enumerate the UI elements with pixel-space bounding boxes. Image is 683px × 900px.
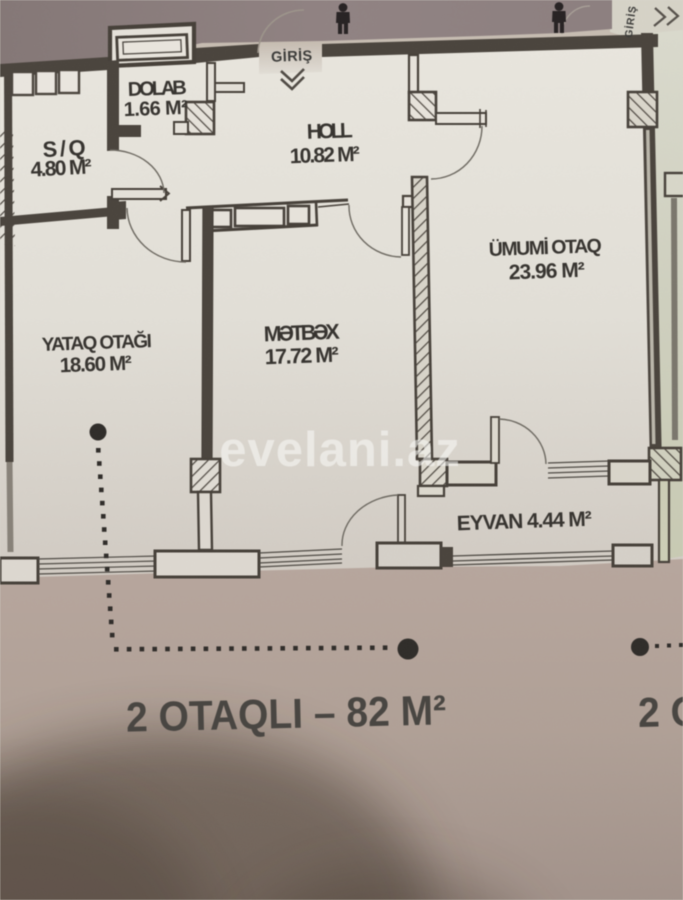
svg-text:2 OTAQLI – 82 M²: 2 OTAQLI – 82 M²: [126, 686, 447, 740]
svg-text:2 OTAQLI – 82 M²: 2 OTAQLI – 82 M²: [637, 682, 683, 736]
